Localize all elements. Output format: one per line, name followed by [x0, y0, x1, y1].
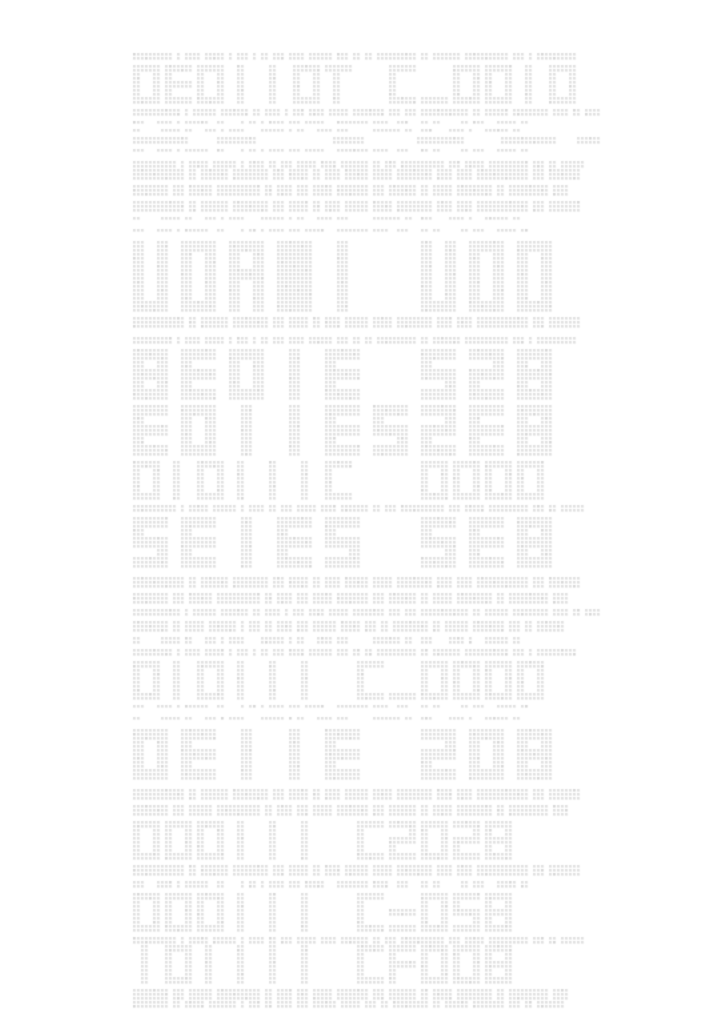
- page: [0, 0, 724, 1024]
- dot-matrix-content: [0, 0, 724, 1024]
